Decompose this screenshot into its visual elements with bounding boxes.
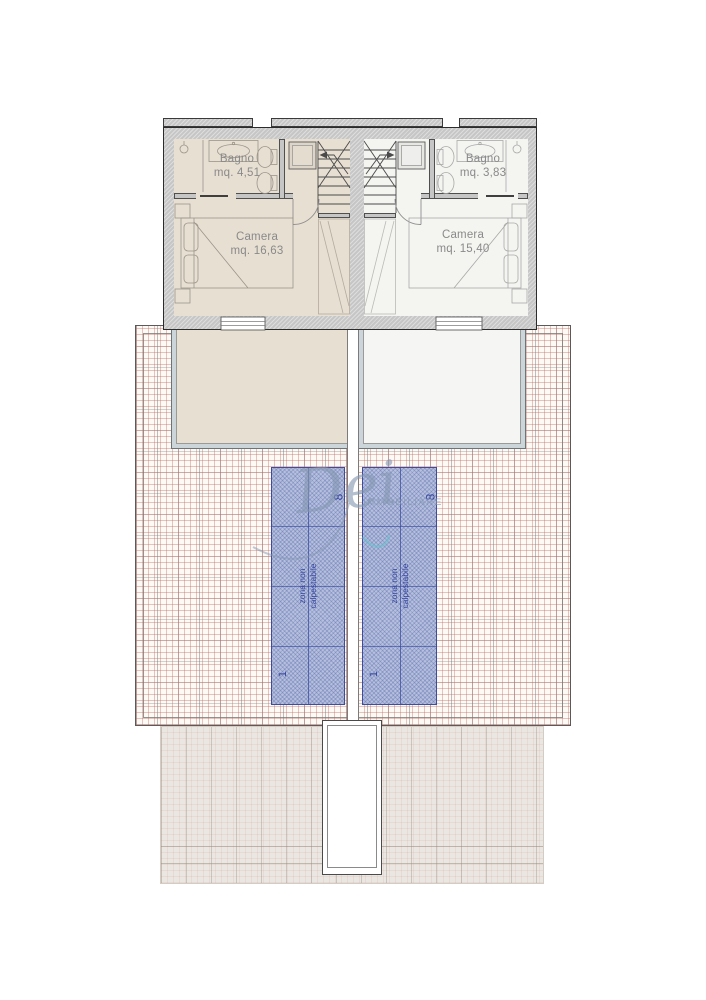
door-gap-right <box>395 193 421 199</box>
zone-grid-hline <box>272 526 344 527</box>
room-name: Bagno <box>460 153 506 167</box>
zone-grid-hline <box>363 646 436 647</box>
label-bagno-left: Bagno mq. 4,51 <box>214 153 260 180</box>
non-walkable-zone-right: 8 zona non calpestabile 1 <box>362 467 437 705</box>
zone-grid-hline <box>363 526 436 527</box>
wall-stair-right <box>364 213 396 218</box>
door-gap-left <box>293 193 319 199</box>
chimney-inner-border <box>327 725 377 868</box>
terrace-left <box>171 330 355 449</box>
zone-label: zona non calpestabile <box>388 546 410 626</box>
room-name: Bagno <box>214 153 260 167</box>
room-area: mq. 16,63 <box>231 245 284 259</box>
room-area: mq. 4,51 <box>214 167 260 181</box>
parapet-right <box>459 118 537 127</box>
floor-plan-canvas: 8 zona non calpestabile 1 8 zona non cal… <box>0 0 706 1000</box>
label-camera-right: Camera mq. 15,40 <box>437 229 490 256</box>
zone-label: zona non calpestabile <box>297 546 319 626</box>
label-camera-left: Camera mq. 16,63 <box>231 231 284 258</box>
zone-grid-hline <box>272 646 344 647</box>
zone-number-top: 8 <box>424 494 438 501</box>
parapet-center <box>271 118 443 127</box>
room-area: mq. 15,40 <box>437 243 490 257</box>
label-bagno-right: Bagno mq. 3,83 <box>460 153 506 180</box>
non-walkable-zone-left: 8 zona non calpestabile 1 <box>271 467 345 705</box>
room-area: mq. 3,83 <box>460 167 506 181</box>
parapet-left <box>163 118 253 127</box>
sliding-door-gap-right <box>478 193 518 199</box>
zone-number-bottom: 1 <box>277 671 289 677</box>
unit-left-interior <box>174 139 350 316</box>
sliding-door-gap-left <box>196 193 236 199</box>
zone-number-bottom: 1 <box>368 671 380 677</box>
wall-bagno-left-side <box>279 139 285 199</box>
terrace-left-floor <box>176 330 350 444</box>
zone-number-top: 8 <box>332 494 346 501</box>
wall-bagno-right-side <box>429 139 435 199</box>
wall-stair-left <box>318 213 350 218</box>
room-name: Camera <box>437 229 490 243</box>
room-name: Camera <box>231 231 284 245</box>
terrace-right <box>358 330 526 449</box>
terrace-right-floor <box>363 330 521 444</box>
chimney-shaft <box>322 720 382 875</box>
building-outline <box>163 118 537 330</box>
party-wall-strip <box>347 330 359 722</box>
